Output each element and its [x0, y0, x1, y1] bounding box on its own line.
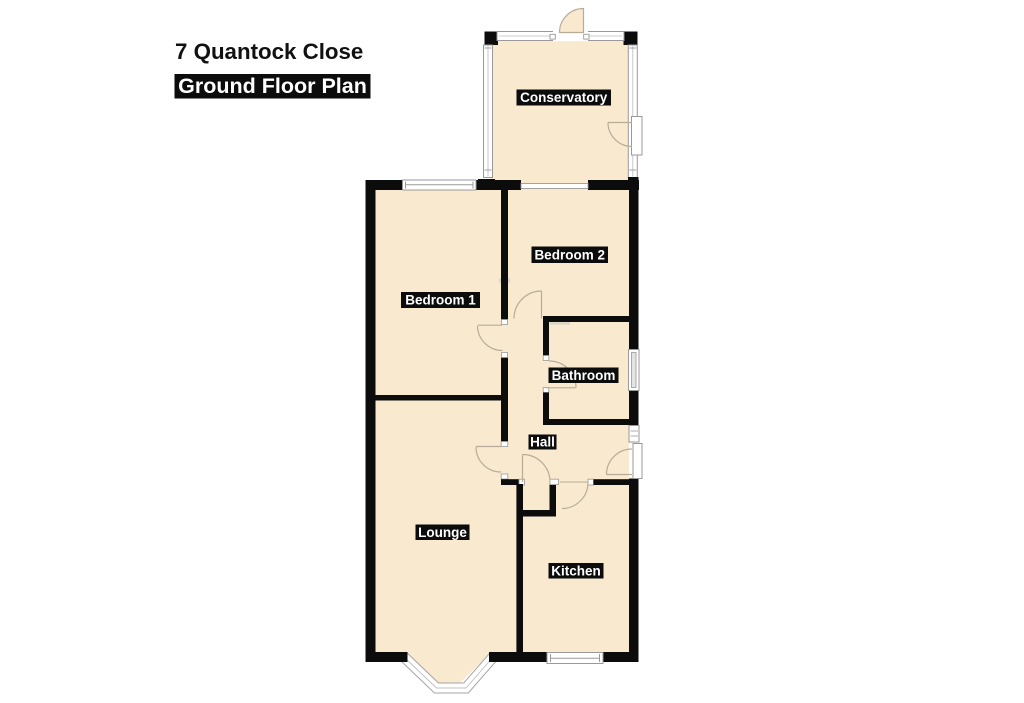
- svg-text:Conservatory: Conservatory: [520, 90, 608, 105]
- svg-text:Bedroom 2: Bedroom 2: [534, 247, 605, 262]
- svg-text:7 Quantock Close: 7 Quantock Close: [175, 39, 363, 64]
- svg-text:Kitchen: Kitchen: [551, 563, 601, 578]
- svg-text:Bedroom 1: Bedroom 1: [405, 293, 476, 308]
- svg-text:Hall: Hall: [530, 435, 555, 450]
- svg-text:Ground Floor Plan: Ground Floor Plan: [178, 74, 367, 98]
- svg-text:Bathroom: Bathroom: [552, 368, 616, 383]
- svg-text:Lounge: Lounge: [418, 525, 467, 540]
